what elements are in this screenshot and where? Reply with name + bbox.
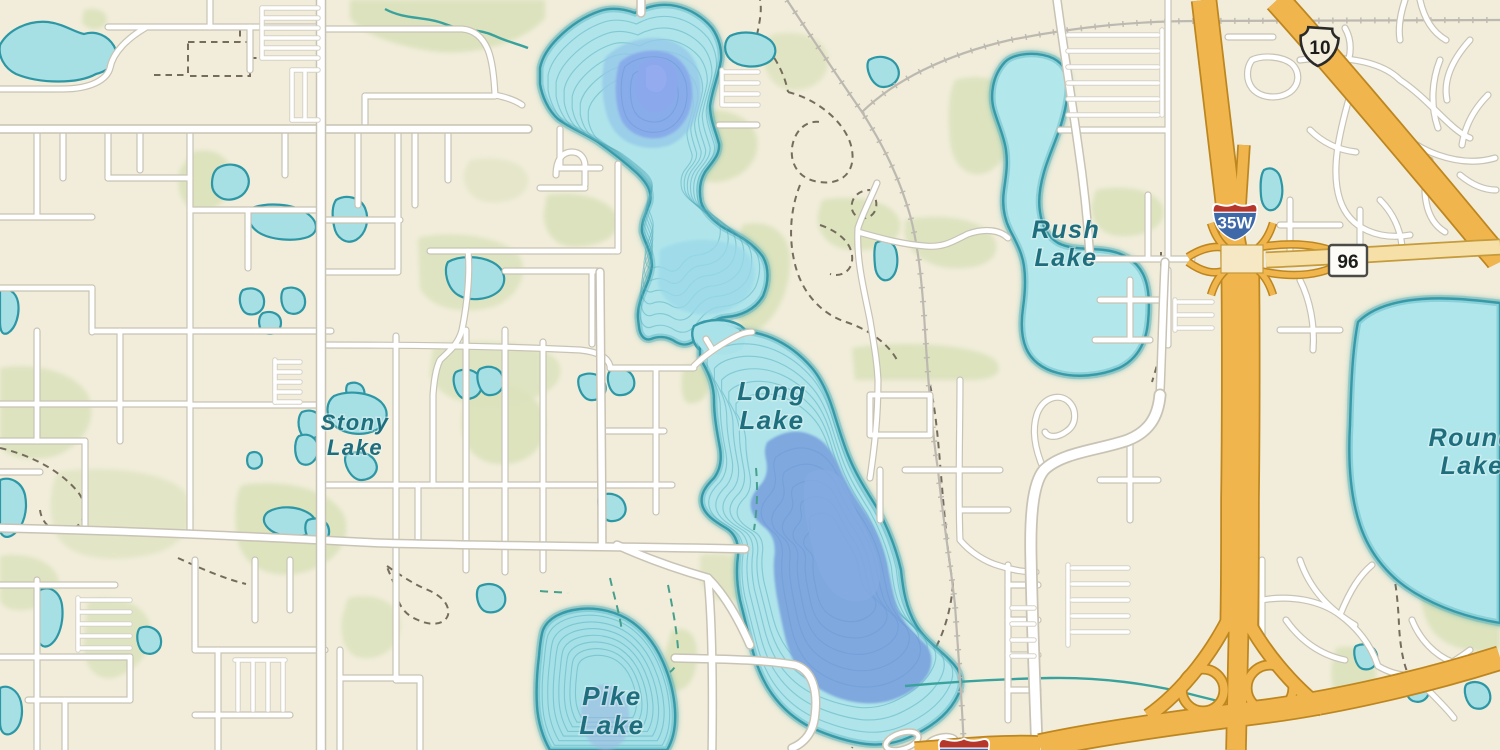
- svg-text:10: 10: [1309, 38, 1330, 59]
- svg-text:StonyLake: StonyLake: [321, 410, 390, 460]
- svg-text:35W: 35W: [1218, 214, 1254, 233]
- svg-text:RushLake: RushLake: [1032, 216, 1101, 272]
- svg-text:LongLake: LongLake: [737, 376, 807, 435]
- svg-text:PikeLake: PikeLake: [579, 681, 644, 740]
- svg-text:96: 96: [1337, 252, 1358, 273]
